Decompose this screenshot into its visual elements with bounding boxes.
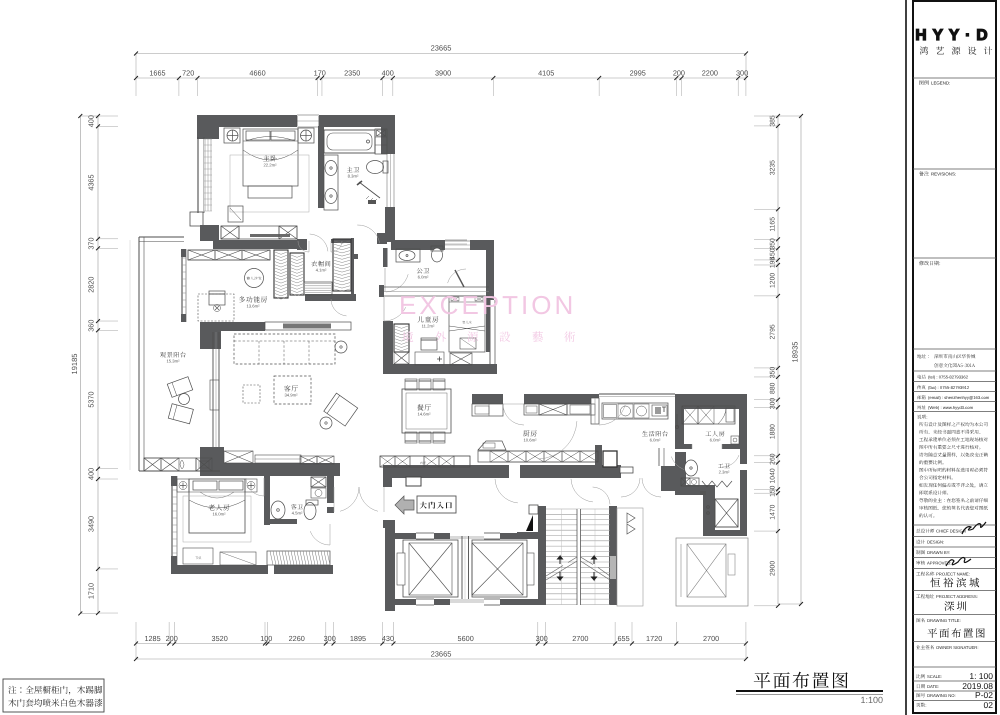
svg-text:1040: 1040 [770, 468, 777, 483]
svg-text:400: 400 [382, 69, 394, 78]
svg-text:1285: 1285 [144, 634, 160, 643]
svg-text:4.1m²: 4.1m² [316, 268, 327, 273]
svg-text:720: 720 [182, 69, 194, 78]
svg-text:23665: 23665 [431, 650, 452, 659]
svg-text:2700: 2700 [703, 634, 719, 643]
svg-text:8.3m²: 8.3m² [348, 174, 359, 179]
svg-text:23665: 23665 [431, 44, 452, 53]
svg-text:4660: 4660 [249, 69, 265, 78]
svg-text:1:100: 1:100 [860, 695, 883, 705]
svg-text:4365: 4365 [87, 174, 96, 190]
svg-text:1470: 1470 [770, 504, 777, 519]
svg-text:3900: 3900 [435, 69, 451, 78]
svg-text:360: 360 [87, 320, 96, 332]
svg-text:6.0m²: 6.0m² [710, 438, 721, 443]
svg-text:370: 370 [87, 237, 96, 249]
svg-text:655: 655 [617, 634, 629, 643]
svg-text:(Web) : www.hyyd3.com: (Web) : www.hyyd3.com [928, 405, 974, 410]
svg-text:PROJECT NAME:: PROJECT NAME: [936, 572, 970, 577]
svg-text:300: 300 [770, 398, 777, 410]
svg-text:5370: 5370 [87, 391, 96, 407]
svg-text:13.6m²: 13.6m² [246, 304, 260, 309]
svg-text:(email) : shenzhenhyy@163.com: (email) : shenzhenhyy@163.com [928, 395, 990, 400]
svg-text:100: 100 [260, 634, 272, 643]
svg-text:385: 385 [770, 115, 777, 127]
svg-text:5600: 5600 [458, 634, 474, 643]
svg-text:350: 350 [770, 367, 777, 379]
svg-text:2200: 2200 [702, 69, 718, 78]
svg-text:3490: 3490 [87, 516, 96, 532]
svg-text:DRAWN BY:: DRAWN BY: [927, 550, 950, 555]
svg-text:200: 200 [673, 69, 685, 78]
svg-text:6.0m²: 6.0m² [418, 275, 429, 280]
svg-text:195: 195 [770, 257, 777, 269]
svg-text:22.2m²: 22.2m² [263, 163, 277, 168]
svg-text:4105: 4105 [538, 69, 554, 78]
svg-text:02: 02 [984, 700, 994, 710]
svg-text:REVISIONS:: REVISIONS: [931, 172, 956, 177]
svg-text:14.6m²: 14.6m² [417, 412, 431, 417]
svg-text:1880: 1880 [770, 424, 777, 439]
svg-text:2795: 2795 [770, 324, 777, 339]
svg-text:2.3m²: 2.3m² [719, 470, 730, 475]
svg-text:2995: 2995 [630, 69, 646, 78]
svg-text:EXCEPTION: EXCEPTION [399, 290, 576, 320]
svg-text:300: 300 [324, 634, 336, 643]
svg-text:300: 300 [536, 634, 548, 643]
svg-text:34.9m²: 34.9m² [284, 393, 298, 398]
svg-text:DESIGN:: DESIGN: [927, 540, 944, 545]
svg-text:2700: 2700 [572, 634, 588, 643]
svg-text:16.0m²: 16.0m² [212, 512, 226, 517]
svg-text:18935: 18935 [791, 342, 800, 363]
svg-text:DATE:: DATE: [927, 684, 939, 689]
svg-text:CHIEF DESIGN: CHIEF DESIGN [936, 529, 966, 534]
svg-text:1895: 1895 [350, 634, 366, 643]
svg-text:4.5m²: 4.5m² [292, 511, 303, 516]
svg-text:LEGEND:: LEGEND: [931, 81, 950, 86]
svg-text:10.6m²: 10.6m² [523, 438, 537, 443]
svg-text:(tel) : 0755-82793362: (tel) : 0755-82793362 [928, 375, 969, 380]
svg-text:1200: 1200 [770, 273, 777, 288]
svg-text:3520: 3520 [212, 634, 228, 643]
svg-text:300: 300 [736, 69, 748, 78]
svg-text:19185: 19185 [70, 354, 79, 375]
svg-text:400: 400 [87, 468, 96, 480]
svg-text:1: 100: 1: 100 [969, 671, 993, 681]
svg-text:170: 170 [314, 69, 326, 78]
svg-text:DRAWING NO:: DRAWING NO: [927, 693, 956, 698]
svg-text:2900: 2900 [770, 561, 777, 576]
svg-text:6.0m²: 6.0m² [650, 438, 661, 443]
svg-text:2260: 2260 [289, 634, 305, 643]
svg-text:400: 400 [87, 115, 96, 127]
svg-text:SCALE:: SCALE: [927, 674, 942, 679]
svg-text:(fax) : 0755-82793912: (fax) : 0755-82793912 [928, 385, 970, 390]
svg-text:15.3m²: 15.3m² [166, 359, 180, 364]
svg-text:1665: 1665 [149, 69, 165, 78]
svg-text:200: 200 [166, 634, 178, 643]
svg-text:1720: 1720 [646, 634, 662, 643]
svg-text:11.2m²: 11.2m² [422, 324, 435, 329]
svg-text:430: 430 [382, 634, 394, 643]
svg-text:HYY·D: HYY·D [915, 27, 993, 44]
svg-text:OWNER SIGNATUER:: OWNER SIGNATUER: [936, 645, 979, 650]
svg-text:3235: 3235 [770, 160, 777, 175]
svg-text:1165: 1165 [770, 217, 777, 232]
svg-text:DRAWING TITLE:: DRAWING TITLE: [927, 618, 961, 623]
svg-text:880: 880 [770, 382, 777, 394]
svg-text:2350: 2350 [344, 69, 360, 78]
svg-text:2820: 2820 [87, 277, 96, 293]
svg-text:P-02: P-02 [975, 690, 993, 700]
svg-text:1710: 1710 [87, 583, 96, 599]
svg-text:PROJECT ADDRESS:: PROJECT ADDRESS: [936, 594, 978, 599]
svg-text:260: 260 [770, 453, 777, 465]
svg-text:150: 150 [770, 485, 777, 497]
